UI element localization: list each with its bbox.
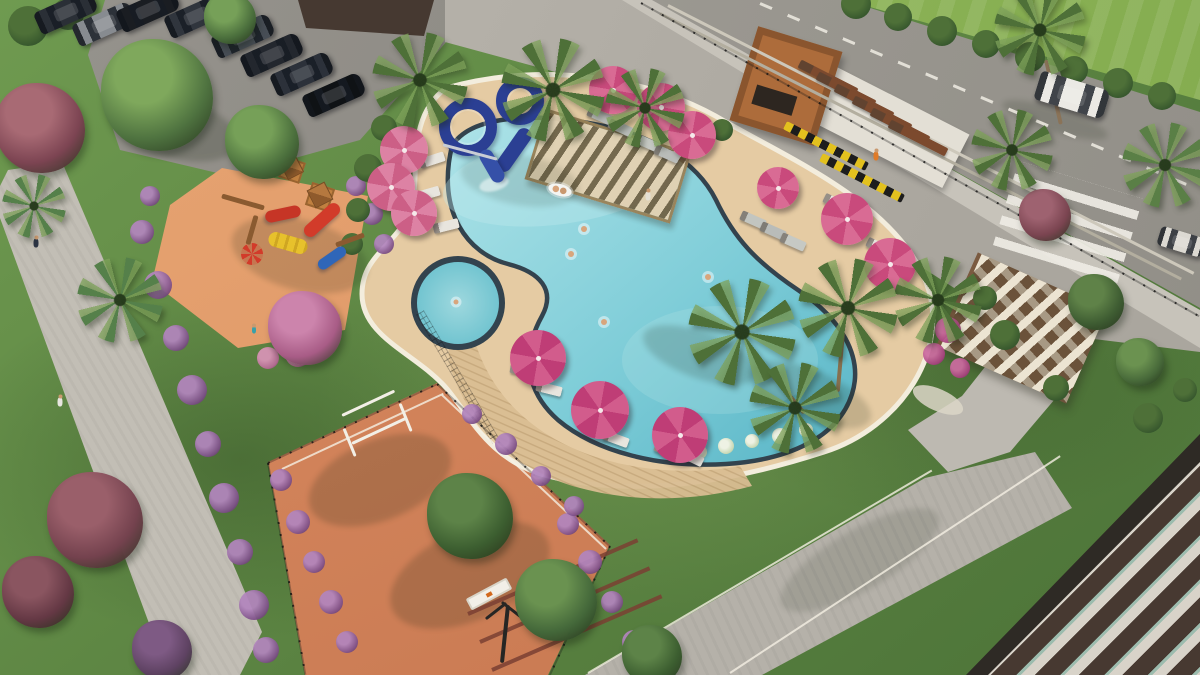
flower bbox=[319, 590, 343, 614]
scene-objects bbox=[0, 0, 1200, 675]
flower bbox=[286, 510, 310, 534]
palm bbox=[77, 257, 163, 343]
swimmer bbox=[601, 319, 607, 325]
flower bbox=[601, 591, 623, 613]
aerial-resort-render bbox=[0, 0, 1200, 675]
flower bbox=[270, 469, 292, 491]
umbrella bbox=[821, 193, 873, 245]
gline bbox=[341, 390, 395, 417]
bush bbox=[346, 198, 370, 222]
spin bbox=[241, 243, 263, 265]
flower bbox=[374, 234, 394, 254]
swimmer bbox=[454, 300, 459, 305]
tree bbox=[268, 291, 342, 365]
tree bbox=[515, 559, 597, 641]
tree bbox=[0, 83, 85, 173]
net bbox=[416, 310, 500, 444]
tree bbox=[2, 556, 74, 628]
palm bbox=[971, 109, 1053, 191]
flower bbox=[462, 404, 482, 424]
flower bbox=[227, 539, 253, 565]
umbrella bbox=[757, 167, 799, 209]
flower bbox=[163, 325, 189, 351]
tree bbox=[47, 472, 143, 568]
bush bbox=[1173, 378, 1197, 402]
palm bbox=[798, 258, 898, 358]
tree bbox=[101, 39, 213, 151]
palm bbox=[749, 362, 841, 454]
wflower bbox=[718, 438, 734, 454]
curb bbox=[909, 379, 967, 421]
bush bbox=[990, 320, 1020, 350]
tree bbox=[1068, 274, 1124, 330]
wline bbox=[729, 455, 1060, 674]
flower bbox=[950, 358, 970, 378]
tree bbox=[1116, 338, 1164, 386]
flower bbox=[923, 343, 945, 365]
bar bbox=[221, 194, 265, 211]
person bbox=[252, 327, 256, 334]
tree bbox=[132, 620, 192, 675]
wflower bbox=[745, 434, 759, 448]
palm bbox=[2, 174, 66, 238]
flower bbox=[557, 513, 579, 535]
lounger bbox=[887, 119, 948, 156]
tree bbox=[427, 473, 513, 559]
palm bbox=[501, 38, 605, 142]
umbrella bbox=[510, 330, 566, 386]
flower bbox=[140, 186, 160, 206]
umbrella bbox=[571, 381, 629, 439]
umbrella bbox=[391, 190, 437, 236]
palm bbox=[894, 256, 982, 344]
palm bbox=[1122, 122, 1200, 208]
flower bbox=[564, 496, 584, 516]
lounger bbox=[432, 218, 460, 234]
person bbox=[34, 239, 39, 248]
umbrella bbox=[652, 407, 708, 463]
flower bbox=[239, 590, 269, 620]
bush bbox=[1043, 375, 1069, 401]
flower bbox=[253, 637, 279, 663]
tree bbox=[225, 105, 299, 179]
palm bbox=[605, 68, 685, 148]
person bbox=[58, 398, 63, 407]
bush bbox=[1148, 82, 1176, 110]
bush bbox=[884, 3, 912, 31]
shadow bbox=[457, 145, 584, 215]
swimmer bbox=[568, 251, 574, 257]
flower bbox=[303, 551, 325, 573]
tree bbox=[622, 625, 682, 675]
flower bbox=[336, 631, 358, 653]
swimmer bbox=[581, 226, 587, 232]
flower bbox=[531, 466, 551, 486]
palm bbox=[372, 32, 468, 128]
bush bbox=[927, 16, 957, 46]
bush bbox=[841, 0, 871, 19]
person bbox=[646, 192, 651, 201]
flower bbox=[209, 483, 239, 513]
rline bbox=[659, 12, 1182, 280]
flower bbox=[495, 433, 517, 455]
lounger bbox=[779, 232, 807, 252]
flower bbox=[130, 220, 154, 244]
flower bbox=[195, 431, 221, 457]
bush bbox=[1133, 403, 1163, 433]
swimmer bbox=[705, 274, 711, 280]
flower bbox=[177, 375, 207, 405]
person bbox=[874, 152, 879, 161]
car bbox=[1156, 225, 1200, 258]
tree bbox=[1019, 189, 1071, 241]
